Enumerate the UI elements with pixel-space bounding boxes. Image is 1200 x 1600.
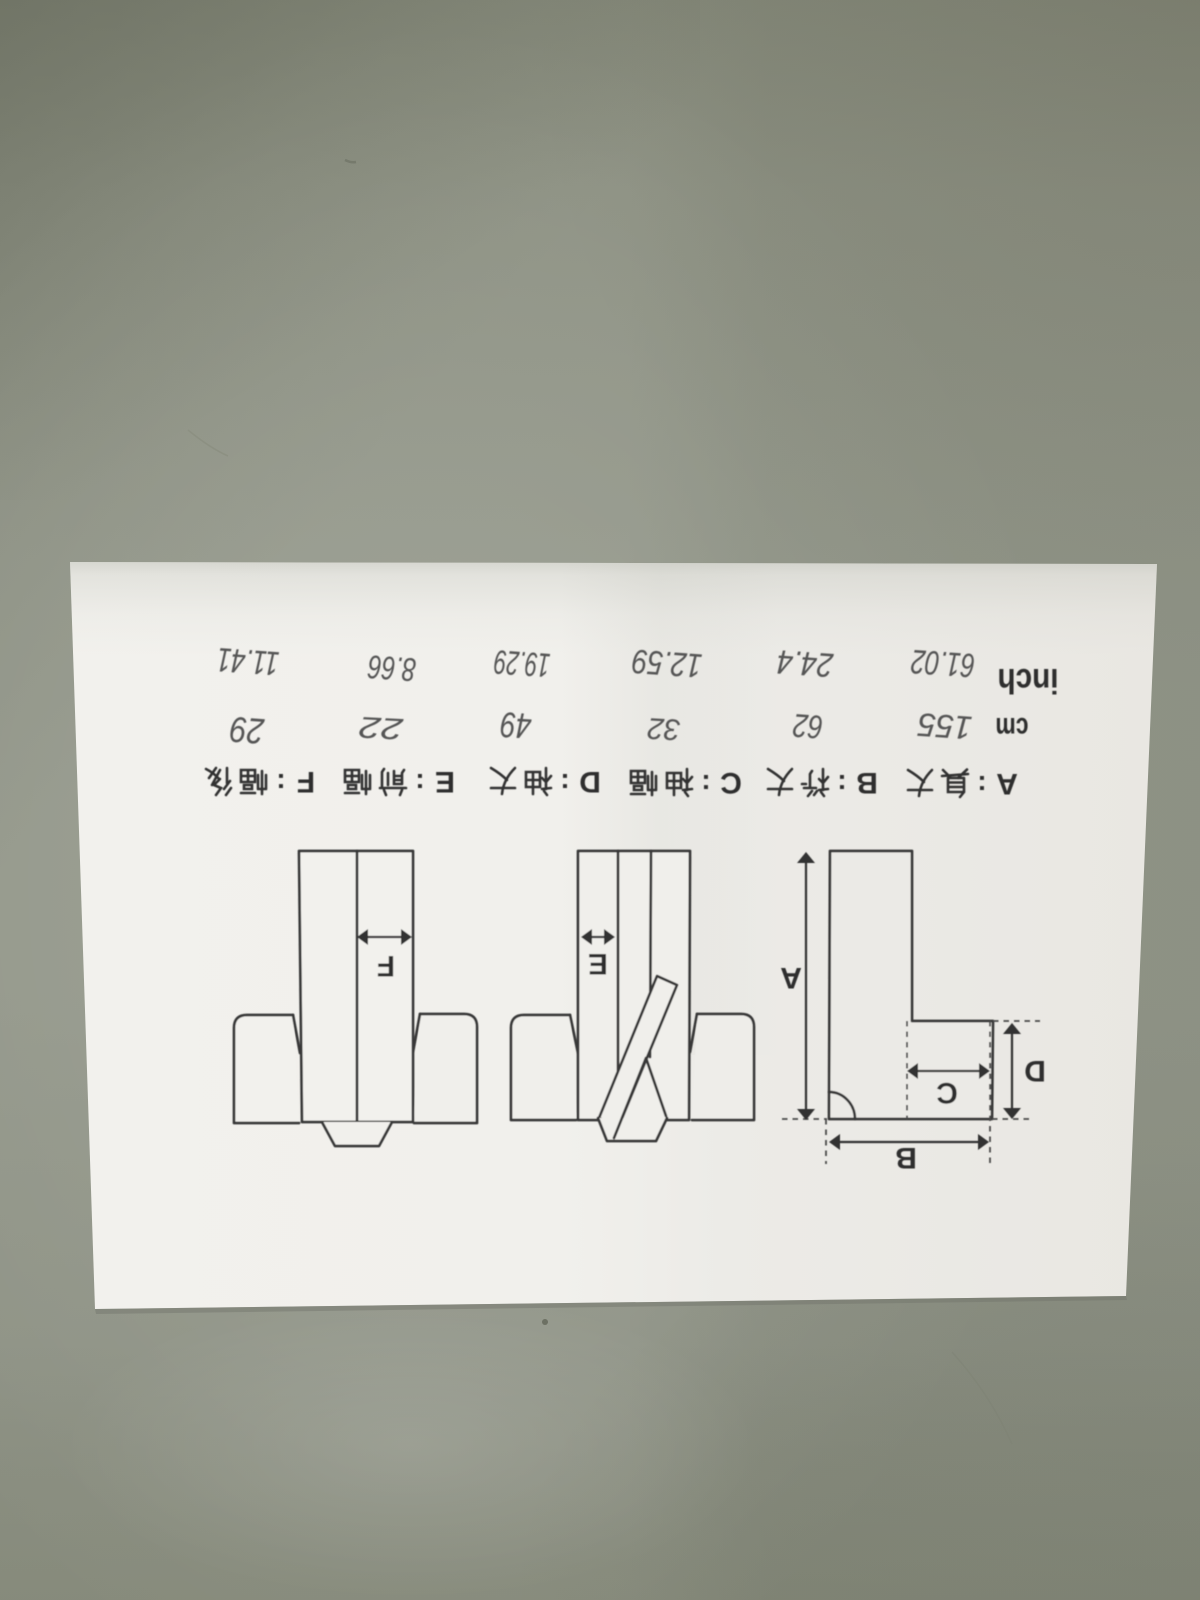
svg-text:24.4: 24.4 [776,642,835,684]
svg-text::: : [701,769,710,800]
svg-text::: : [276,768,285,799]
svg-text:inch: inch [998,661,1059,700]
svg-text:F: F [297,765,315,798]
svg-text:B: B [895,1141,917,1174]
svg-text:D: D [1024,1054,1046,1087]
svg-text:A: A [780,961,802,994]
svg-text:32: 32 [646,711,681,746]
svg-text:cm: cm [996,711,1029,744]
svg-text:22: 22 [358,710,405,745]
svg-text:A: A [996,767,1018,800]
svg-text:D: D [579,765,601,798]
svg-text:12.59: 12.59 [631,642,704,685]
svg-text::: : [977,770,986,801]
svg-text:49: 49 [499,704,532,747]
svg-text::: : [560,768,569,799]
svg-text:C: C [720,766,742,799]
svg-text:11.41: 11.41 [216,640,280,682]
svg-text:E: E [435,765,455,798]
svg-text:155: 155 [916,706,973,747]
svg-text:E: E [588,947,608,980]
svg-text:19.29: 19.29 [493,642,552,684]
svg-text::: : [837,769,846,800]
svg-text:62: 62 [792,707,825,746]
svg-text:61.02: 61.02 [910,642,977,684]
svg-text:C: C [936,1076,958,1109]
svg-text:B: B [856,766,878,799]
svg-text::: : [415,768,424,799]
svg-text:8.66: 8.66 [366,648,417,688]
svg-text:29: 29 [229,709,267,752]
svg-text:F: F [377,949,395,982]
